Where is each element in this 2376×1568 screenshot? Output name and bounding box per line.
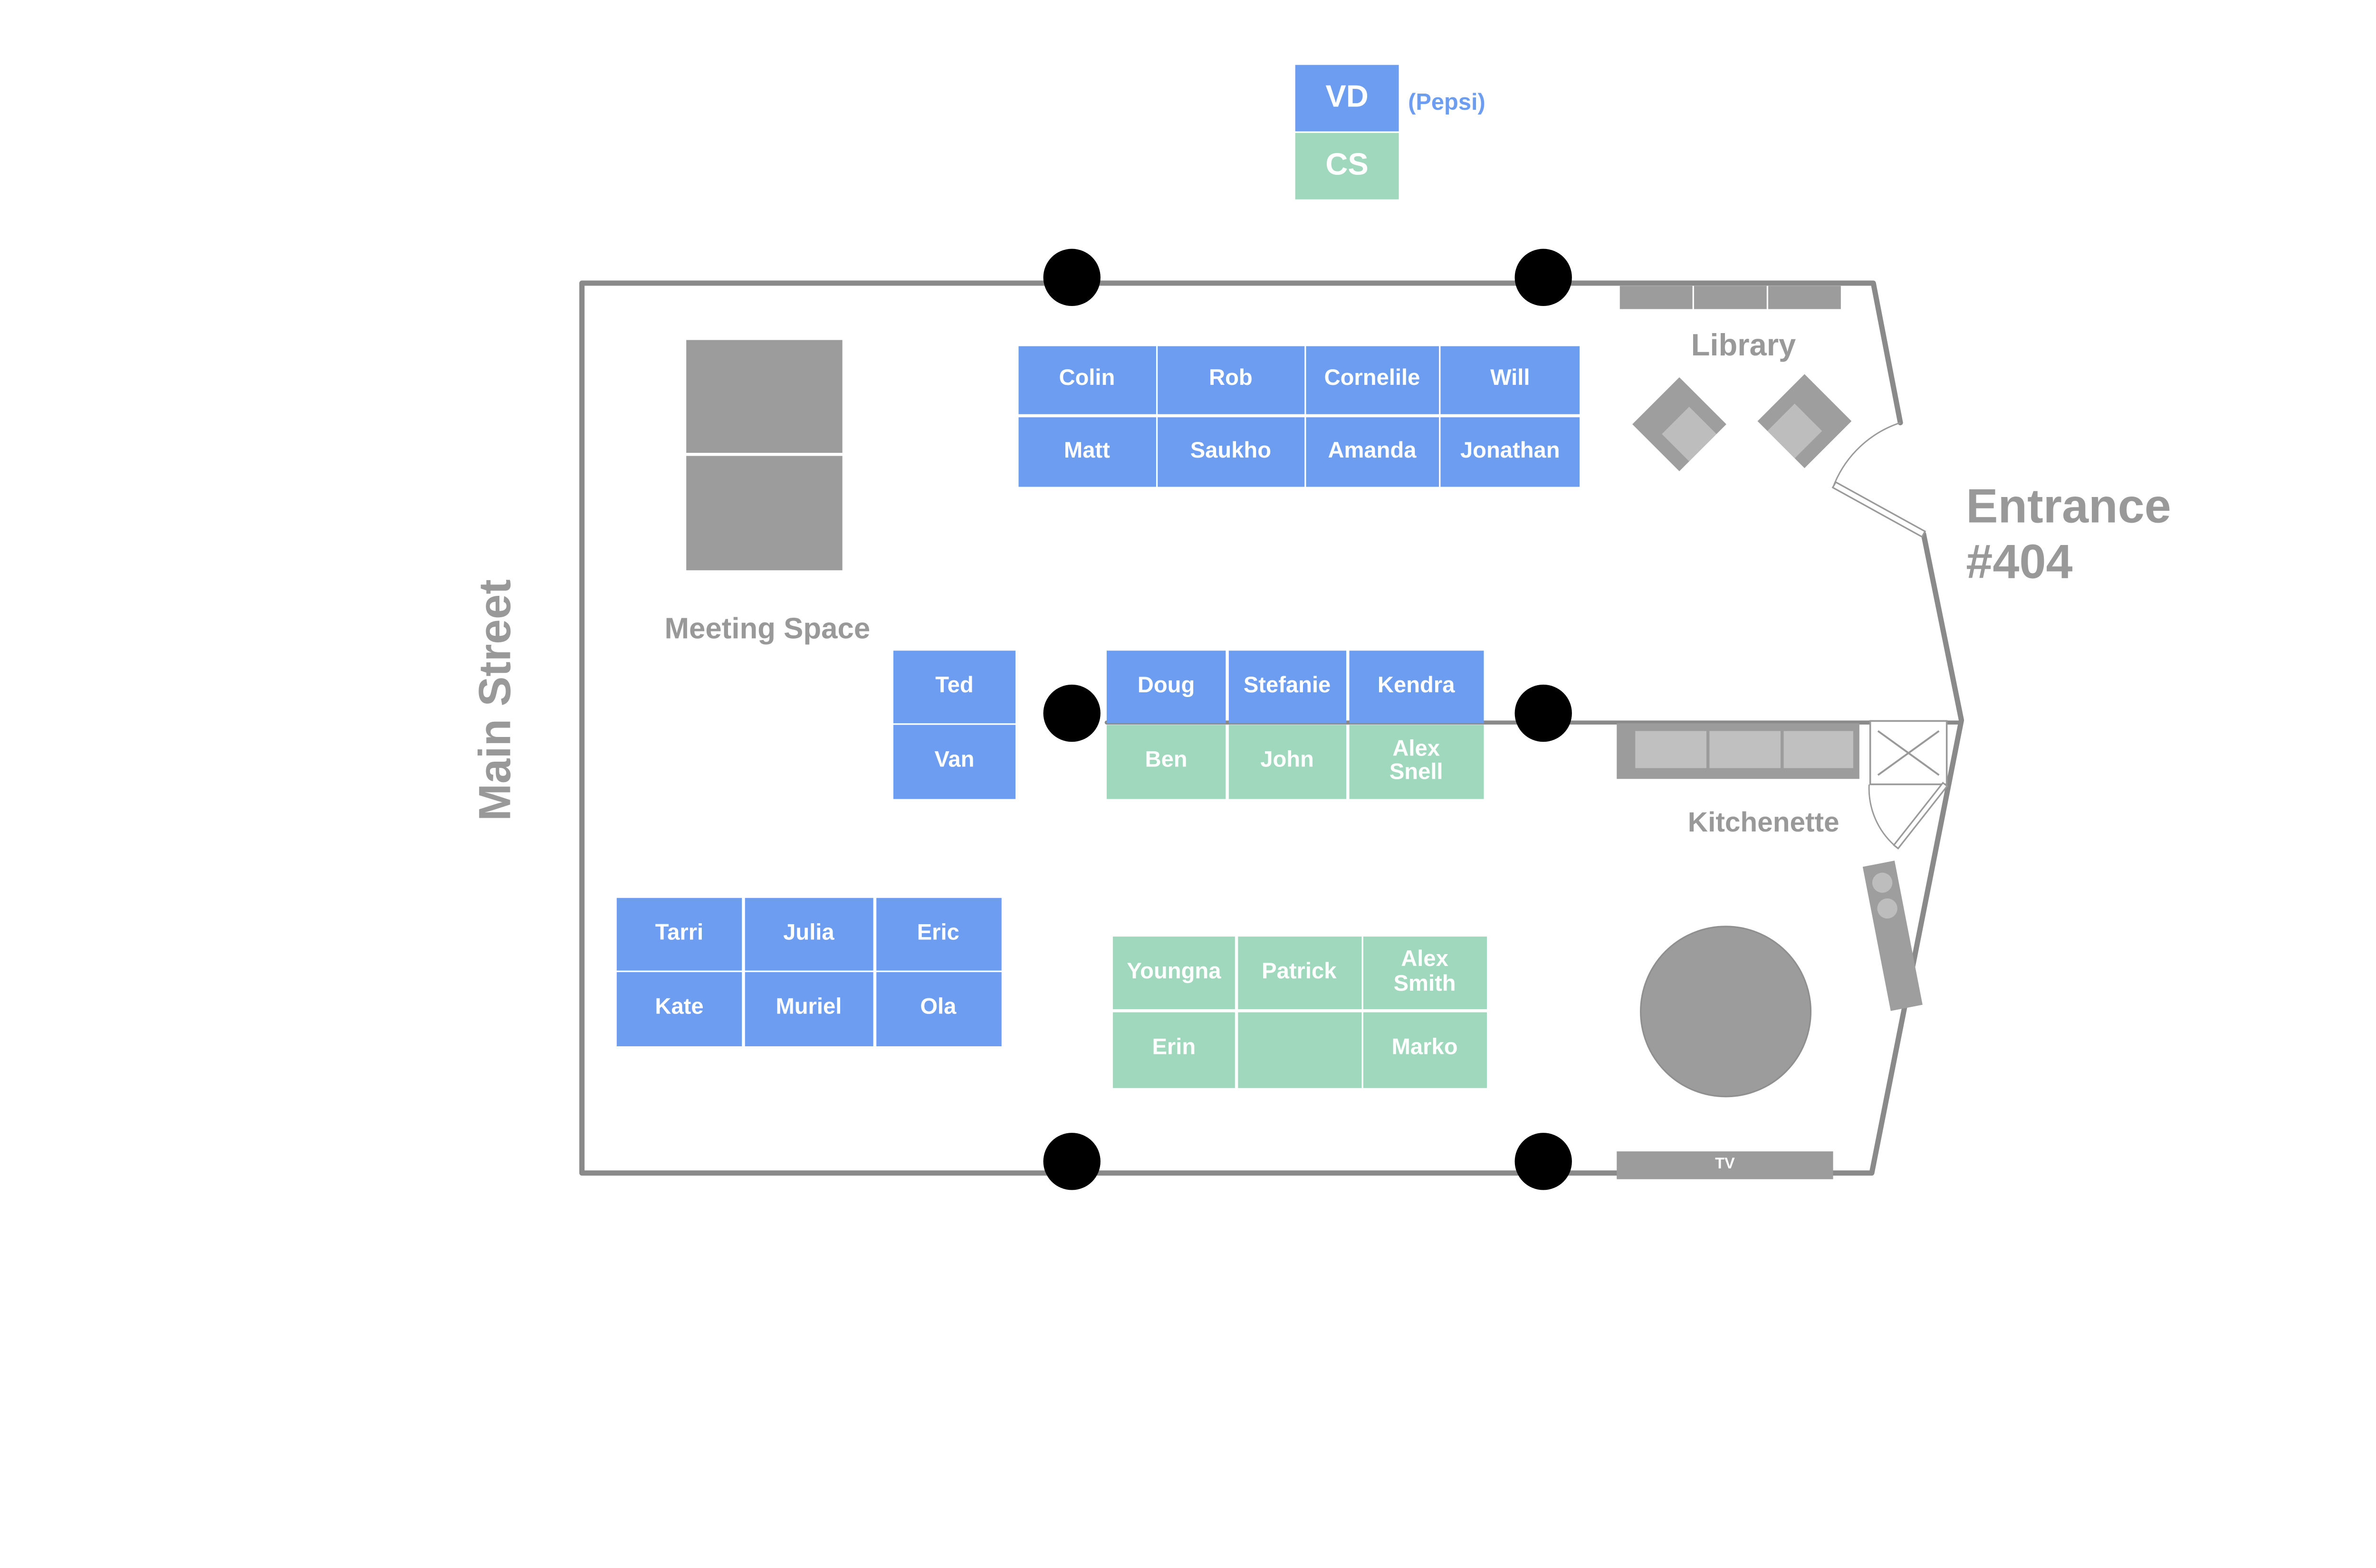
desk-tarri[interactable]: Tarri bbox=[617, 898, 742, 970]
desk-matt[interactable]: Matt bbox=[1018, 417, 1155, 487]
desk-erin[interactable]: Erin bbox=[1113, 1012, 1235, 1087]
library-bookshelf[interactable] bbox=[1619, 286, 1841, 308]
kitchenette-counter[interactable] bbox=[1617, 723, 1859, 778]
desk-marko[interactable]: Marko bbox=[1363, 1012, 1486, 1087]
bookshelf-section bbox=[1694, 286, 1767, 308]
desk-will[interactable]: Will bbox=[1440, 346, 1580, 414]
legend-cs-box[interactable]: CS bbox=[1295, 133, 1399, 199]
desk-cluster-middle-green: BenJohnAlex Snell bbox=[1107, 725, 1484, 799]
desk-ben[interactable]: Ben bbox=[1107, 725, 1226, 799]
cabinet-knob bbox=[1870, 871, 1894, 895]
desk-van[interactable]: Van bbox=[893, 725, 1016, 799]
desk-stefanie[interactable]: Stefanie bbox=[1228, 650, 1346, 722]
main-street-label: Main Street bbox=[473, 576, 519, 823]
desk-john[interactable]: John bbox=[1228, 725, 1346, 799]
counter-section bbox=[1635, 731, 1706, 767]
entrance-door-arc bbox=[1834, 423, 1901, 485]
desk-alex-smith[interactable]: Alex Smith bbox=[1363, 937, 1486, 1009]
counter-section bbox=[1783, 731, 1854, 767]
pepsi-note: (Pepsi) bbox=[1408, 90, 1485, 116]
desk-patrick[interactable]: Patrick bbox=[1237, 937, 1361, 1009]
floor-plan: VD CS (Pepsi) TV ColinRobCornelileWillMa… bbox=[0, 0, 2376, 1567]
library-label: Library bbox=[1635, 329, 1851, 365]
desk-cluster-bottom-middle: YoungnaPatrickAlex SmithErinMarko bbox=[1113, 937, 1486, 1087]
counter-section bbox=[1709, 731, 1780, 767]
desk-empty[interactable] bbox=[1237, 1012, 1361, 1087]
desk-ted[interactable]: Ted bbox=[893, 650, 1016, 722]
cabinet-knob bbox=[1875, 897, 1898, 920]
desk-cluster-ted-van: TedVan bbox=[893, 650, 1016, 799]
desk-kendra[interactable]: Kendra bbox=[1349, 650, 1484, 722]
kitchen-door-arc bbox=[1869, 784, 1896, 847]
entrance-line1: Entrance bbox=[1966, 479, 2171, 535]
round-table[interactable] bbox=[1639, 925, 1811, 1097]
tv[interactable]: TV bbox=[1617, 1151, 1833, 1178]
desk-colin[interactable]: Colin bbox=[1018, 346, 1155, 414]
desk-cluster-bottom-left: TarriJuliaEricKateMurielOla bbox=[617, 898, 1001, 1046]
desk-cluster-middle-blue: DougStefanieKendra bbox=[1107, 650, 1484, 722]
desk-rob[interactable]: Rob bbox=[1158, 346, 1303, 414]
desk-julia[interactable]: Julia bbox=[744, 898, 873, 970]
tv-label: TV bbox=[1715, 1157, 1735, 1174]
desk-alex-snell[interactable]: Alex Snell bbox=[1349, 725, 1484, 799]
desk-jonathan[interactable]: Jonathan bbox=[1440, 417, 1580, 487]
meeting-tables bbox=[686, 339, 843, 570]
desk-cluster-top: ColinRobCornelileWillMattSaukhoAmandaJon… bbox=[1018, 346, 1580, 487]
desk-amanda[interactable]: Amanda bbox=[1306, 417, 1438, 487]
entrance-line2: #404 bbox=[1966, 535, 2171, 590]
desk-doug[interactable]: Doug bbox=[1107, 650, 1226, 722]
desk-ola[interactable]: Ola bbox=[876, 972, 1001, 1045]
desk-eric[interactable]: Eric bbox=[876, 898, 1001, 970]
bookshelf-section bbox=[1619, 286, 1692, 308]
meeting-table-top[interactable] bbox=[686, 339, 843, 453]
desk-kate[interactable]: Kate bbox=[617, 972, 742, 1045]
desk-muriel[interactable]: Muriel bbox=[744, 972, 873, 1045]
meeting-table-bottom[interactable] bbox=[686, 455, 843, 570]
entrance-label: Entrance #404 bbox=[1966, 479, 2171, 590]
bookshelf-section bbox=[1769, 286, 1842, 308]
entrance-door-leaf bbox=[1833, 482, 1925, 537]
desk-cornelile[interactable]: Cornelile bbox=[1306, 346, 1438, 414]
meeting-space-label: Meeting Space bbox=[655, 613, 880, 648]
desk-saukho[interactable]: Saukho bbox=[1158, 417, 1303, 487]
legend-vd-box[interactable]: VD bbox=[1295, 65, 1399, 131]
kitchenette-label: Kitchenette bbox=[1656, 807, 1872, 839]
legend: VD CS bbox=[1295, 65, 1399, 199]
desk-youngna[interactable]: Youngna bbox=[1113, 937, 1235, 1009]
